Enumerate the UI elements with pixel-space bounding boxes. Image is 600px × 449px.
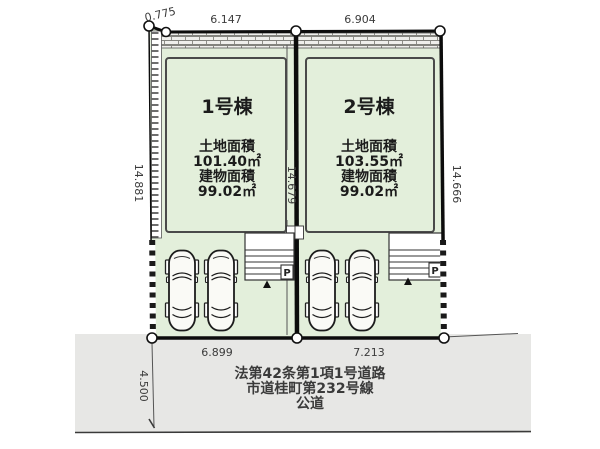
lot1-parking-p-label: P [283, 268, 290, 279]
dim-left-height: 14.881 [132, 164, 145, 203]
lot1-car1-icon [166, 251, 199, 331]
lot2-land-area-value: 103.55㎡ [335, 153, 403, 170]
road-designation-line1: 法第42条第1項1号道路 [235, 365, 387, 382]
road-designation-line3: 公道 [296, 395, 324, 412]
dim-lot1-top-width: 6.147 [210, 13, 242, 26]
lot2-car1-icon [306, 251, 339, 331]
lot2-building-area-label: 建物面積 [341, 168, 398, 185]
lot2-name: 2号棟 [343, 95, 395, 118]
dim-middle-height: 14.679 [285, 166, 298, 205]
dim-right-height: 14.666 [450, 165, 463, 204]
lot2-parking-p-label: P [431, 266, 438, 277]
site-plan: 0.775 6.147 6.904 14.881 14.679 14.666 6… [0, 0, 600, 449]
dim-lot1-bottom-width: 6.899 [201, 346, 233, 359]
site-plan-page: 0.775 6.147 6.904 14.881 14.679 14.666 6… [0, 0, 600, 449]
road-designation-line2: 市道桂町第232号線 [246, 380, 373, 397]
dim-top-bevel: 0.775 [143, 5, 177, 25]
west-boundary-hatch [152, 31, 162, 238]
dim-lot2-bottom-width: 7.213 [353, 346, 385, 359]
dim-road-width: 4.500 [137, 370, 150, 402]
road-far-edge-line [75, 432, 531, 433]
lot1-name: 1号棟 [201, 95, 253, 118]
lot2-building-area-value: 99.02㎡ [340, 183, 398, 200]
lot1-car2-icon [205, 251, 238, 331]
lot1-land-area-label: 土地面積 [199, 138, 256, 155]
lot2-land-area-label: 土地面積 [341, 138, 398, 155]
lot2-car2-icon [346, 251, 379, 331]
lot1-building-area-value: 99.02㎡ [198, 183, 256, 200]
dim-lot2-top-width: 6.904 [344, 13, 376, 26]
lot1-land-area-value: 101.40㎡ [193, 153, 261, 170]
lot1-building-area-label: 建物面積 [199, 168, 256, 185]
